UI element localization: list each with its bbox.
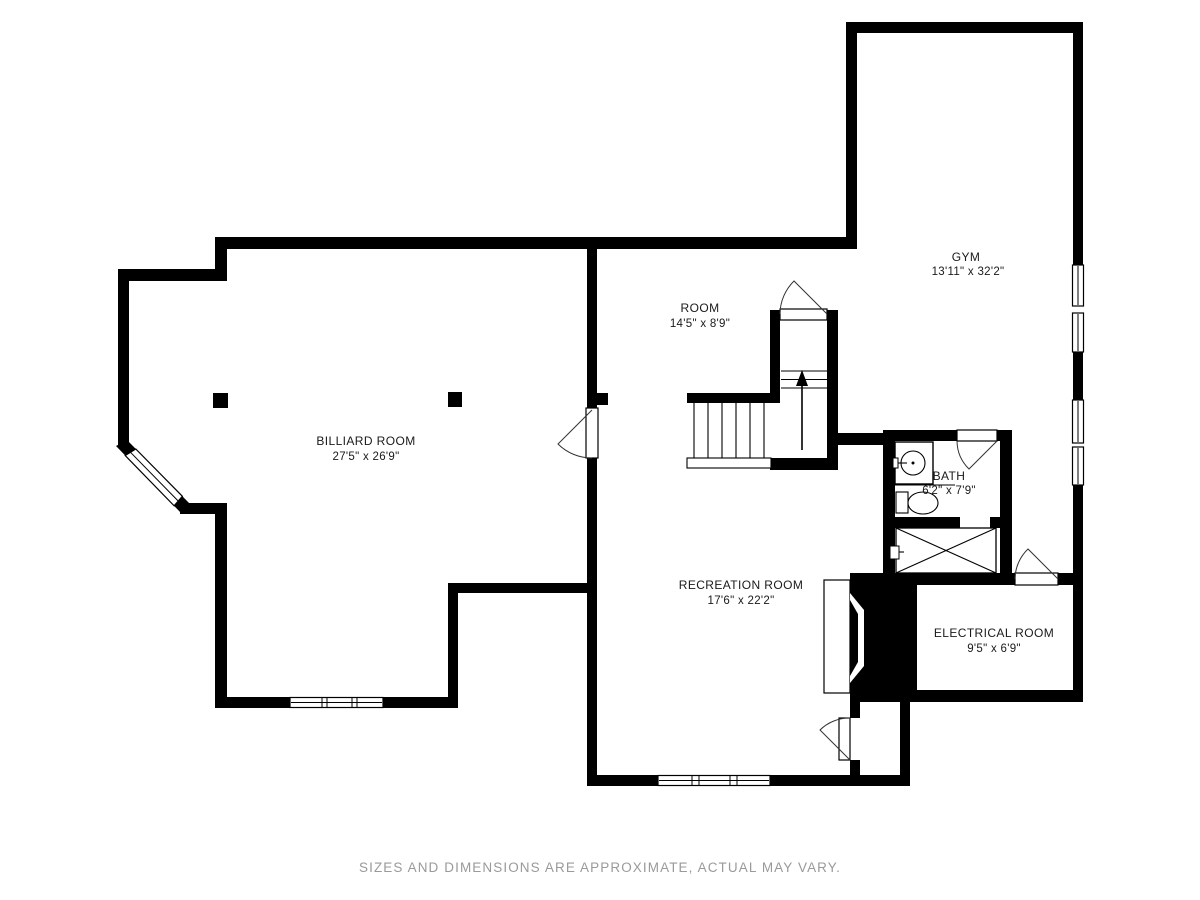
doors bbox=[558, 281, 1058, 760]
wall-center-upper bbox=[587, 237, 597, 408]
wall-electrical-bottom bbox=[910, 690, 1083, 702]
wall-right-upper bbox=[1073, 22, 1083, 265]
wall-center-cap bbox=[587, 393, 608, 405]
wall-stair-right bbox=[827, 310, 838, 470]
window-recreation-bottom bbox=[658, 776, 770, 786]
door-bath bbox=[957, 430, 997, 469]
wall-electrical-top-left bbox=[910, 573, 1015, 585]
door-electrical bbox=[1015, 549, 1058, 585]
wall-right-lower bbox=[1073, 485, 1083, 702]
disclaimer-text: SIZES AND DIMENSIONS ARE APPROXIMATE, AC… bbox=[359, 860, 841, 875]
wall-stair-left bbox=[770, 310, 780, 403]
gym-label: GYM bbox=[952, 250, 981, 264]
post-billiard-left bbox=[213, 393, 228, 408]
gym-dims: 13'11" x 32'2" bbox=[932, 266, 1005, 278]
window-gym-3 bbox=[1073, 400, 1084, 443]
wall-bath-east bbox=[1000, 430, 1012, 585]
wall-bath-bottom-right bbox=[990, 517, 1002, 528]
wall-billiard-left bbox=[118, 269, 129, 448]
billiard-room-dims: 27'5" x 26'9" bbox=[333, 451, 400, 463]
wall-nook-left-a bbox=[850, 702, 860, 718]
bath-dims: 6'2" x 7'9" bbox=[922, 485, 976, 497]
room-labels: GYM 13'11" x 32'2" ROOM 14'5" x 8'9" BIL… bbox=[316, 250, 1054, 655]
window-billiard-chamfer bbox=[125, 449, 182, 506]
wall-bath-top-left bbox=[883, 430, 957, 441]
floorplan-page: GYM 13'11" x 32'2" ROOM 14'5" x 8'9" BIL… bbox=[0, 0, 1200, 900]
bath-label: BATH bbox=[933, 469, 966, 483]
wall-billiard-lower-right bbox=[448, 583, 458, 708]
recreation-room-label: RECREATION ROOM bbox=[679, 578, 803, 592]
stairs-up-arrow-icon bbox=[796, 370, 808, 450]
room-dims: 14'5" x 8'9" bbox=[670, 318, 730, 330]
wall-hall bbox=[838, 433, 890, 445]
billiard-room-label: BILLIARD ROOM bbox=[316, 434, 415, 448]
wall-stair-north bbox=[687, 393, 773, 403]
window-gym-1 bbox=[1073, 265, 1084, 306]
door-stairs bbox=[780, 281, 827, 320]
window-gym-2 bbox=[1073, 313, 1084, 352]
recreation-room-dims: 17'6" x 22'2" bbox=[708, 595, 775, 607]
electrical-room-dims: 9'5" x 6'9" bbox=[967, 643, 1021, 655]
wall-center-lower bbox=[587, 458, 597, 786]
wall-right-mid bbox=[1073, 352, 1083, 400]
post-billiard-right bbox=[448, 392, 462, 407]
mechanical-area bbox=[890, 528, 996, 573]
window-billiard-bottom bbox=[290, 698, 383, 708]
electrical-room-label: ELECTRICAL ROOM bbox=[934, 626, 1054, 640]
wall-gym-top bbox=[846, 22, 1083, 33]
wall-gym-left bbox=[846, 22, 857, 249]
wall-bath-bottom-left bbox=[883, 517, 960, 528]
wall-billiard-nw bbox=[118, 269, 227, 281]
door-billiard bbox=[558, 408, 598, 458]
door-recreation-nook bbox=[820, 718, 850, 760]
window-gym-4 bbox=[1073, 447, 1084, 485]
wall-electrical-top-right bbox=[1058, 573, 1083, 585]
wall-billiard-se bbox=[448, 583, 597, 593]
wall-nook-right bbox=[900, 690, 910, 786]
wall-stair-landing bbox=[770, 458, 838, 470]
staircase bbox=[687, 370, 827, 468]
wall-middle-top bbox=[215, 237, 853, 249]
room-label: ROOM bbox=[681, 301, 720, 315]
floorplan-canvas: GYM 13'11" x 32'2" ROOM 14'5" x 8'9" BIL… bbox=[0, 0, 1200, 900]
wall-billiard-lower-left bbox=[215, 503, 227, 708]
walls bbox=[116, 22, 1083, 786]
